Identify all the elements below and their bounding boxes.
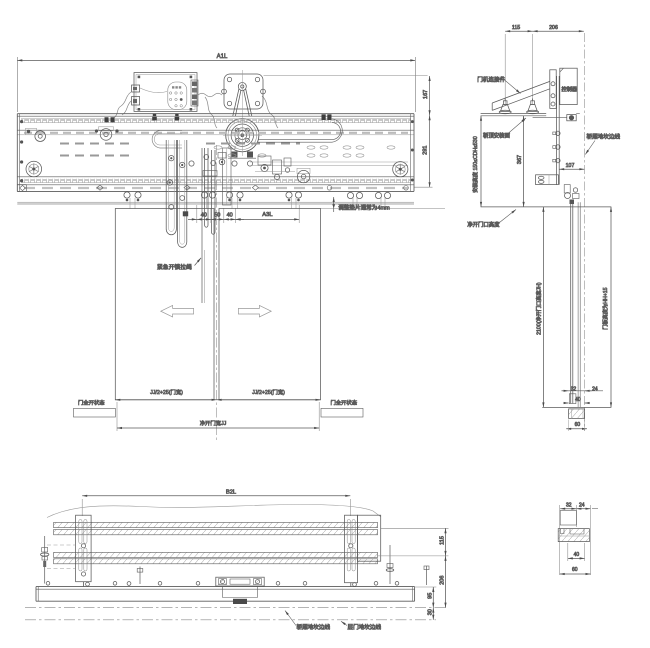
svg-text:60: 60 [572, 567, 578, 573]
svg-text:A1L: A1L [217, 54, 228, 60]
svg-text:115: 115 [512, 25, 520, 31]
svg-text:门全开状态: 门全开状态 [78, 399, 105, 407]
svg-text:107: 107 [566, 163, 575, 169]
svg-text:紧急开锁拉绳: 紧急开锁拉绳 [157, 263, 192, 271]
svg-text:206: 206 [439, 576, 445, 585]
svg-text:95: 95 [427, 593, 433, 599]
svg-text:净开门宽JJ: 净开门宽JJ [200, 419, 227, 427]
svg-text:367: 367 [517, 155, 523, 164]
svg-text:167: 167 [423, 90, 429, 99]
svg-text:30: 30 [427, 609, 433, 615]
svg-text:调整垫片通常为4mm: 调整垫片通常为4mm [338, 203, 390, 211]
svg-text:轿厢地坎边线: 轿厢地坎边线 [587, 133, 621, 141]
svg-text:净开门口高度: 净开门口高度 [467, 221, 500, 229]
svg-text:206: 206 [549, 25, 558, 31]
svg-text:40: 40 [575, 397, 581, 403]
svg-text:A3L: A3L [262, 212, 273, 218]
svg-text:轿顶安装面: 轿顶安装面 [483, 132, 511, 140]
svg-text:2100(净开门口高度JH): 2100(净开门口高度JH) [535, 282, 543, 335]
svg-text:40: 40 [201, 213, 207, 219]
svg-text:40: 40 [574, 552, 580, 558]
svg-text:115: 115 [439, 536, 445, 545]
svg-text:B2L: B2L [226, 490, 237, 496]
svg-text:60: 60 [575, 422, 581, 428]
svg-text:层门地坎边线: 层门地坎边线 [348, 623, 382, 631]
svg-text:安装高度 150≤CDH≤530: 安装高度 150≤CDH≤530 [471, 136, 479, 193]
svg-text:32: 32 [571, 386, 577, 392]
svg-text:32: 32 [566, 503, 572, 509]
svg-text:门板高度为HH+15: 门板高度为HH+15 [601, 287, 609, 329]
svg-text:24: 24 [579, 503, 585, 509]
svg-text:291: 291 [423, 146, 429, 155]
svg-text:40: 40 [227, 213, 233, 219]
svg-text:JJ/2+25(门宽): JJ/2+25(门宽) [150, 388, 183, 396]
svg-text:轿厢地坎边线: 轿厢地坎边线 [297, 623, 331, 631]
svg-text:JJ/2+25(门宽): JJ/2+25(门宽) [252, 388, 285, 396]
svg-text:50: 50 [214, 213, 220, 219]
svg-text:24: 24 [592, 386, 598, 392]
svg-text:门全开状态: 门全开状态 [331, 399, 358, 407]
svg-text:门机连接件: 门机连接件 [477, 76, 505, 84]
svg-text:控制器: 控制器 [562, 85, 578, 93]
